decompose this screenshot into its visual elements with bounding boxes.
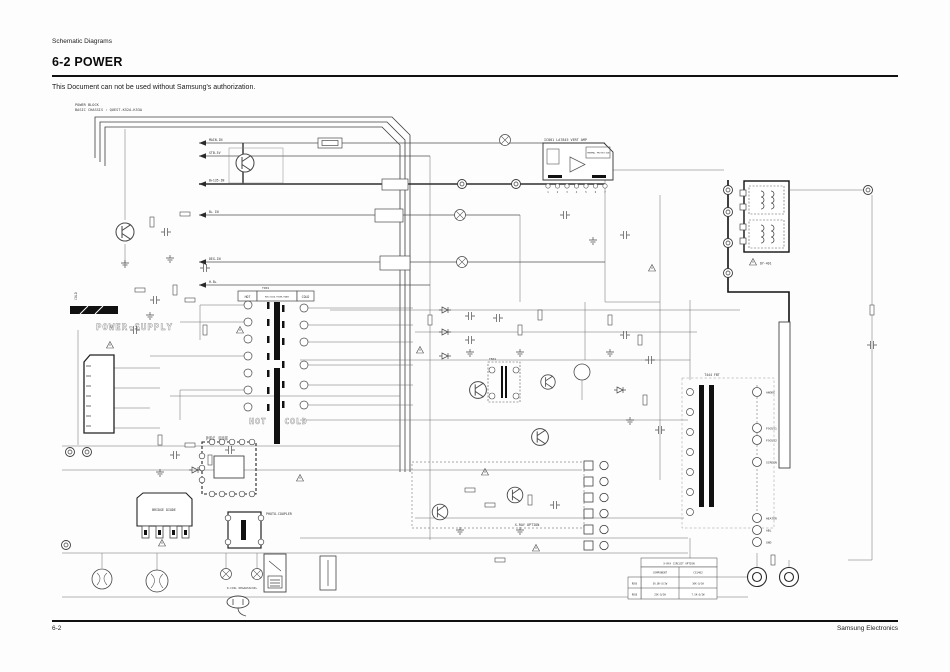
degauss-label: D-COIL DEGAUSSCOIL: [227, 586, 258, 590]
pin-number: 1: [547, 191, 549, 194]
power-schematic: POWER BLOCK BASIC CHASSIS : QUEST-K52A-K…: [0, 0, 950, 672]
pin-number: 3: [566, 191, 568, 194]
net-label: DEG-IN: [209, 257, 221, 261]
shield-bar: [70, 306, 118, 314]
fbt-pin-label: FOCUS2: [766, 439, 777, 443]
net-label: H.B+: [209, 280, 217, 284]
power-transformer: HOT MDB-5021A POWER-TRANS COLD T901 HOT …: [238, 286, 314, 444]
block-title-line2: BASIC CHASSIS : QUEST-K52A-K53A: [75, 108, 143, 112]
table-row-ref: R856: [632, 583, 638, 586]
dy-connector-block: DY-401: [724, 180, 790, 322]
net-label: B+135-IN: [209, 179, 224, 183]
main-connector: [84, 355, 114, 433]
secondary-taps: [300, 304, 308, 409]
xray-circuit-option-table: X-RAY CIRCUIT OPTION COMPONENT CS1402 R8…: [628, 558, 717, 599]
table-cell: 30K-Ω/1W: [692, 583, 704, 586]
table-cell: 22K-Ω/2W: [654, 594, 666, 597]
trans-model-cell: MDB-5021A POWER-TRANS: [265, 295, 290, 298]
footer-brand: Samsung Electronics: [837, 625, 898, 632]
pin-column: [584, 461, 608, 550]
fbt-region: T444 FBT ANODE FOCUS1 FOCUS2 SCREEN HEAT…: [682, 322, 790, 548]
net-label: MAIN-IN: [209, 138, 223, 142]
fbt-ref: T444 FBT: [704, 373, 719, 377]
trans-cold-cell: COLD: [302, 295, 310, 299]
degauss-cap: [221, 569, 232, 580]
xray-option-label: X-RAY OPTION: [515, 523, 540, 527]
drive-transformer: T801: [488, 357, 520, 402]
hot-watermark: HOT: [249, 417, 266, 426]
table-col-header: CS1402: [693, 571, 703, 575]
pfc-block: PFC USE: [199, 436, 256, 497]
trans-hot-cell: HOT: [245, 295, 251, 299]
drive-transformer-ref: T801: [489, 357, 496, 361]
footer-rule: [52, 620, 898, 622]
ic801-thermal-label: THERMAL PROTECTION: [587, 152, 610, 155]
pin-number: 6: [595, 191, 597, 194]
bridge-diode-block: BRIDGE DIODE: [137, 493, 192, 538]
crt-pin-label: ABL: [766, 529, 772, 533]
power-supply-watermark: POWER-SUPPLY: [96, 323, 173, 333]
ic801-vertical-amp: IC801 LA7845 VERT AMP THERMAL PROTECTION…: [543, 138, 613, 194]
ic801-pins: 1 2 3 4 5 6 7: [546, 184, 607, 194]
table-row-ref: R858: [632, 594, 638, 597]
line-filter-choke: [146, 570, 168, 592]
crt-board-bar: [779, 322, 790, 468]
fbt-pin-label: FOCUS1: [766, 427, 777, 431]
fbt-pin-label: SCREEN: [766, 461, 777, 465]
cold-side-label: COLD: [74, 292, 78, 300]
fbt-pin-label: ANODE: [766, 391, 775, 395]
crt-pin-label: HEATER: [766, 517, 777, 521]
crt-pin-label: GND: [766, 541, 772, 545]
bridge-label: BRIDGE DIODE: [152, 508, 176, 512]
net-label: STB-5V: [209, 151, 221, 155]
pin-number: 7: [604, 191, 606, 194]
ic801-title: IC801 LA7845 VERT AMP: [544, 138, 587, 142]
cold-watermark: COLD: [284, 417, 307, 426]
transformer-ref: T901: [262, 286, 269, 290]
line-filter-choke: [92, 569, 112, 589]
bottom-right-jacks: [748, 568, 799, 587]
manual-page: Schematic Diagrams 6-2 POWER This Docume…: [0, 0, 950, 672]
footer-page-number: 6-2: [52, 625, 61, 632]
net-label: B+ IN: [209, 210, 219, 214]
pin-number: 5: [585, 191, 587, 194]
block-title-line1: POWER BLOCK: [75, 103, 100, 107]
primary-taps: [244, 301, 252, 411]
table-cell: 56.8K-Ω/1W: [653, 583, 668, 586]
ac-inlet: [227, 596, 249, 608]
left-region: POWER-SUPPLY COLD: [70, 292, 173, 433]
dy-ref: DY-401: [760, 262, 772, 266]
block-title: POWER BLOCK BASIC CHASSIS : QUEST-K52A-K…: [75, 103, 143, 112]
table-cell: 7.5K-Ω/2W: [692, 594, 706, 597]
table-title: X-RAY CIRCUIT OPTION: [663, 562, 695, 566]
degauss-cap: [252, 569, 263, 580]
table-col-header: COMPONENT: [653, 571, 667, 575]
isolation-region: PHOTO-COUPLER D-COIL DEGAUSSCOIL: [92, 512, 336, 616]
pin-number: 4: [576, 191, 578, 194]
pin-number: 2: [557, 191, 559, 194]
photo-coupler-label: PHOTO-COUPLER: [266, 512, 292, 516]
